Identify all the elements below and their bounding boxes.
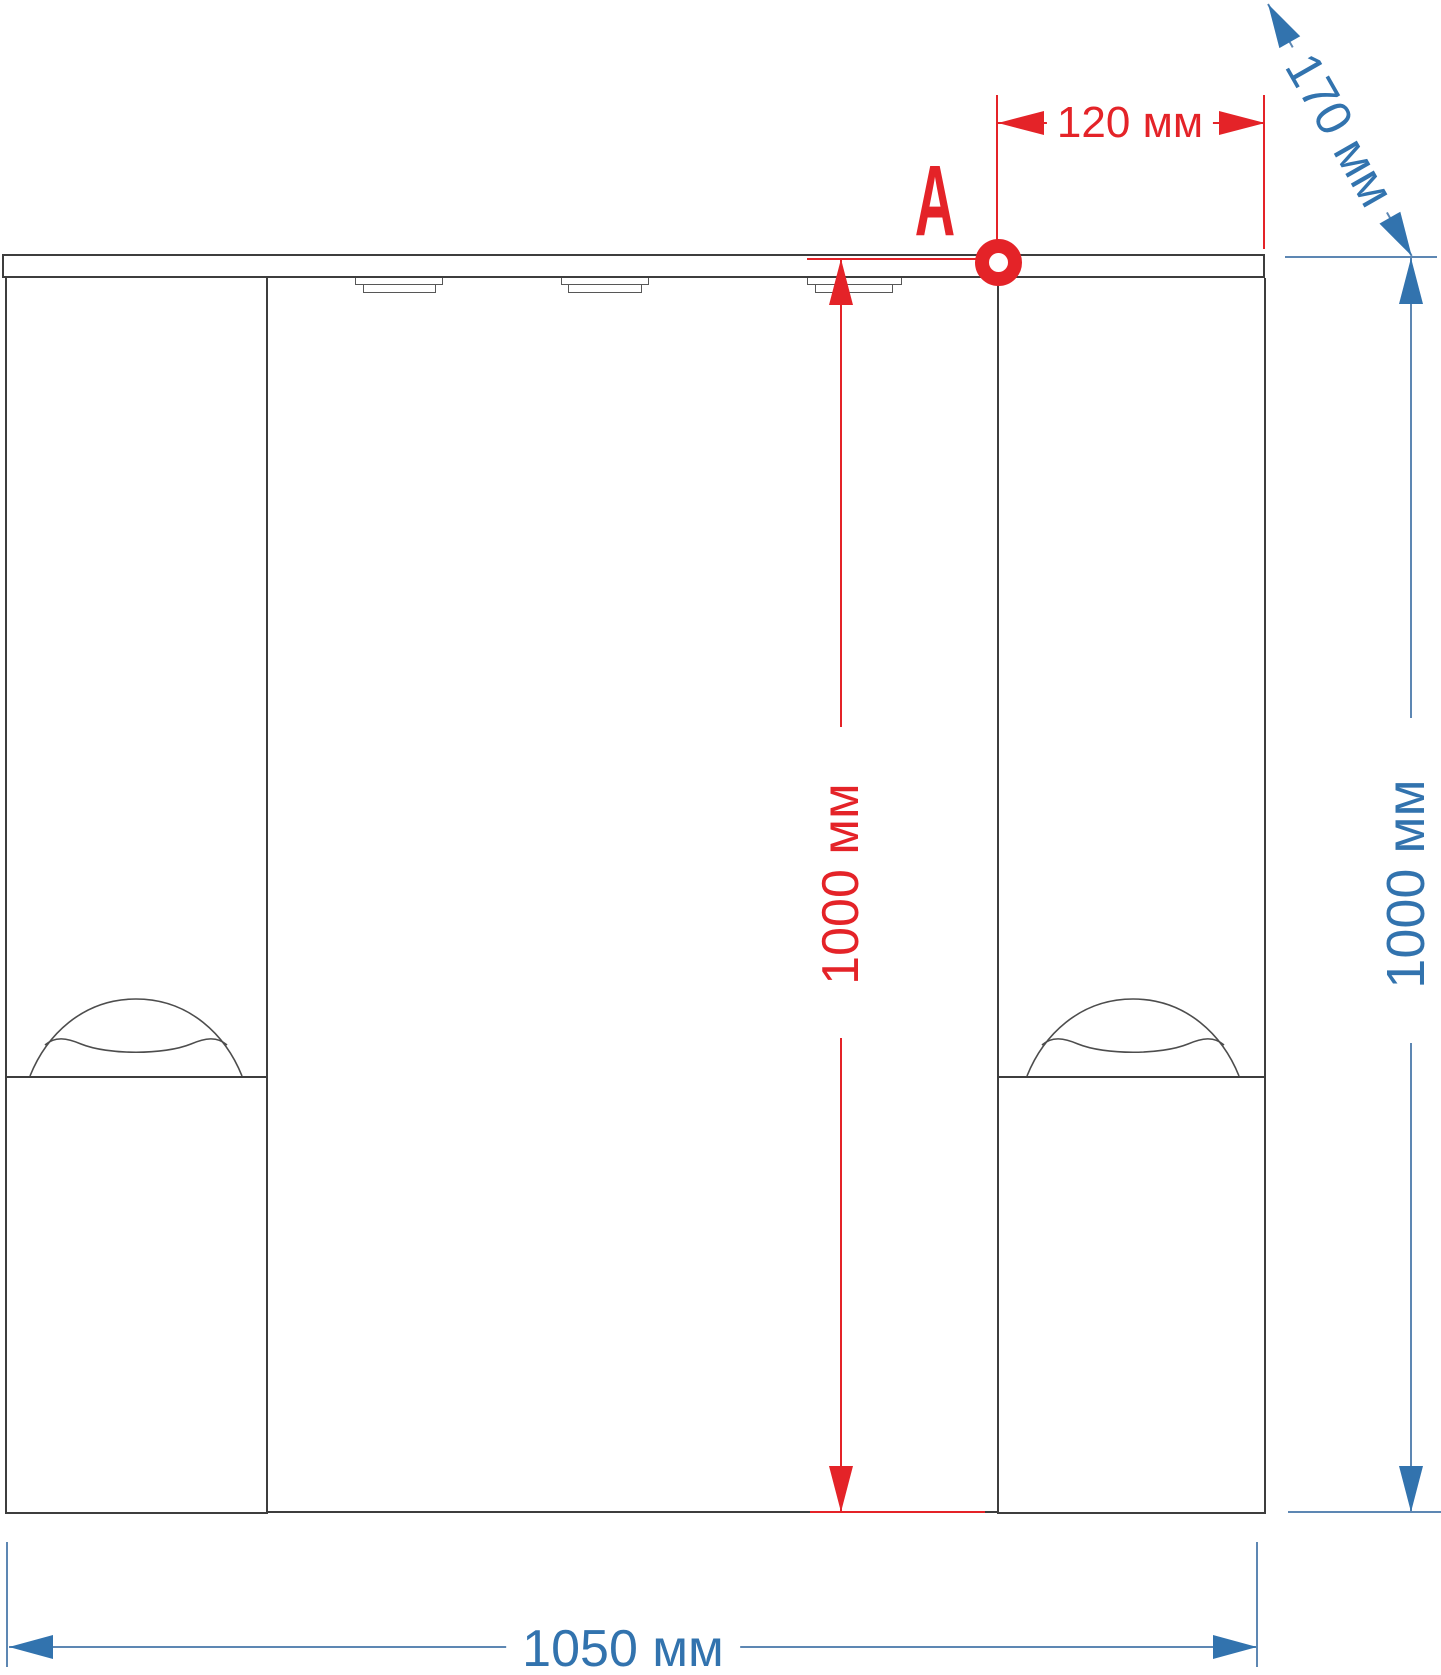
left-cabinet-handle-icon	[26, 994, 246, 1078]
drawing-canvas: 1000 мм 120 мм A 170 мм 1000 мм 1050 мм	[0, 0, 1441, 1675]
hole-height-dimension-label: 1000 мм	[815, 769, 867, 999]
lamp-shade-3	[807, 278, 902, 285]
arrow-down-icon	[1399, 1466, 1423, 1512]
overall-height-dimension-label: 1000 мм	[1379, 765, 1433, 1002]
arrow-up-icon	[1399, 258, 1423, 304]
lamp-shade-1	[355, 278, 443, 285]
top-shelf	[2, 254, 1265, 278]
left-cabinet	[5, 278, 268, 1514]
arrow-up-icon	[829, 259, 853, 305]
blue-height-dimension-line-upper	[1410, 258, 1412, 718]
arrow-left-icon	[9, 1635, 53, 1659]
arrow-left-icon	[998, 111, 1044, 135]
hole-offset-dimension-label: 120 мм	[1047, 101, 1213, 145]
mounting-point-marker	[975, 239, 1022, 286]
mounting-point-label: A	[915, 151, 955, 251]
red-height-dimension-line-lower	[840, 1038, 842, 1512]
right-cabinet	[997, 278, 1266, 1514]
red-extension-line-bottom	[810, 1511, 985, 1513]
lamp-shade-3-inner	[815, 285, 893, 293]
depth-dimension-label: 170 мм	[1271, 35, 1409, 225]
arrow-down-icon	[829, 1466, 853, 1512]
arrow-up-left-icon	[1258, 0, 1301, 48]
blue-extension-line-bottom-right	[1288, 1511, 1441, 1513]
depth-dimension-group: 170 мм	[1268, 4, 1412, 256]
lamp-shade-2	[561, 278, 649, 285]
arrow-down-right-icon	[1379, 212, 1422, 262]
arrow-right-icon	[1219, 111, 1265, 135]
red-height-dimension-line-upper	[840, 259, 842, 727]
overall-width-dimension-label: 1050 мм	[506, 1623, 740, 1675]
lamp-shade-2-inner	[568, 285, 642, 293]
arrow-right-icon	[1213, 1635, 1257, 1659]
lamp-shade-1-inner	[363, 285, 436, 293]
blue-extension-line-left	[6, 1542, 8, 1667]
right-cabinet-handle-icon	[1023, 994, 1243, 1078]
blue-height-dimension-line-lower	[1410, 1043, 1412, 1512]
